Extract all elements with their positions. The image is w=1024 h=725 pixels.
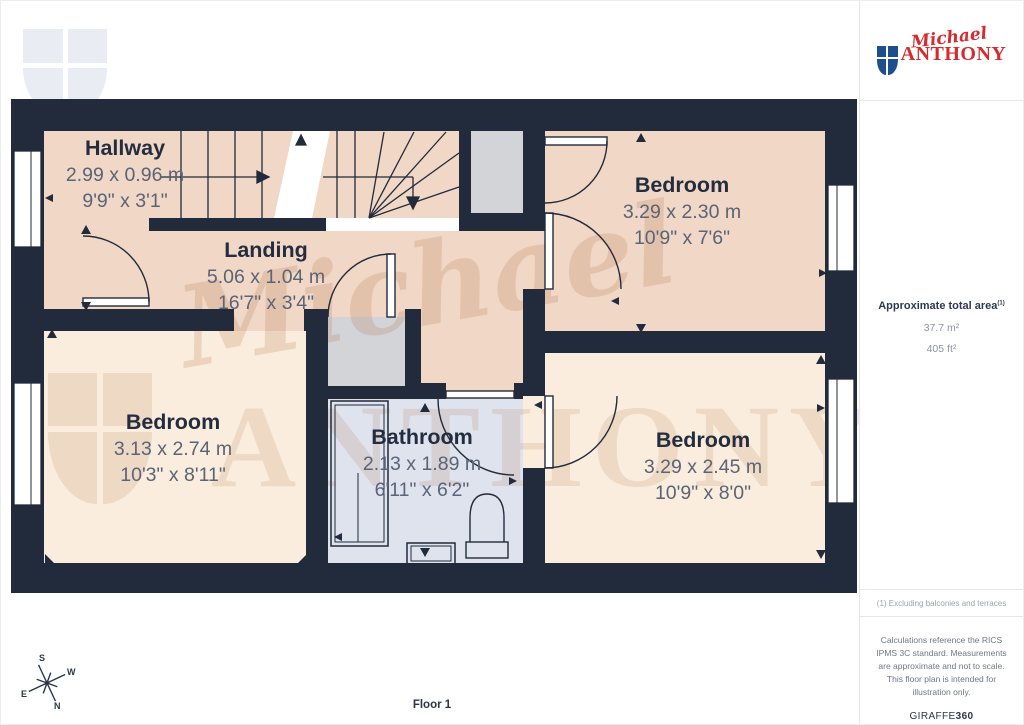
info-sidebar: Michael ANTHONY Approximate total area(1… [859, 1, 1023, 725]
giraffe360-brand: GIRAFFE360 [873, 710, 1010, 723]
disclaimer-panel: Calculations reference the RICS IPMS 3C … [860, 616, 1023, 723]
logo-shield-icon [877, 46, 898, 73]
floorplan-canvas: Michael ANTHONY [1, 1, 861, 724]
total-area-panel: Approximate total area(1) 37.7 m² 405 ft… [860, 101, 1023, 589]
area-m2: 37.7 m² [924, 318, 960, 339]
floorplan-page: Michael ANTHONY [0, 0, 1024, 725]
svg-text:E: E [21, 689, 27, 699]
toilet [466, 494, 508, 558]
total-area-values: 37.7 m² 405 ft² [924, 318, 960, 360]
agency-logo: Michael ANTHONY [860, 1, 1023, 101]
total-area-heading: Approximate total area(1) [878, 300, 1005, 312]
disclaimer-text: Calculations reference the RICS IPMS 3C … [873, 634, 1010, 699]
wall-layer [1, 1, 863, 725]
floor-label: Floor 1 [1, 699, 863, 711]
area-footnote: (1) Excluding balconies and terraces [860, 589, 1023, 616]
shower [331, 401, 388, 546]
svg-text:W: W [67, 667, 76, 677]
area-ft2: 405 ft² [924, 339, 960, 360]
svg-text:S: S [39, 653, 45, 663]
walls [11, 99, 857, 593]
sink [407, 543, 455, 564]
